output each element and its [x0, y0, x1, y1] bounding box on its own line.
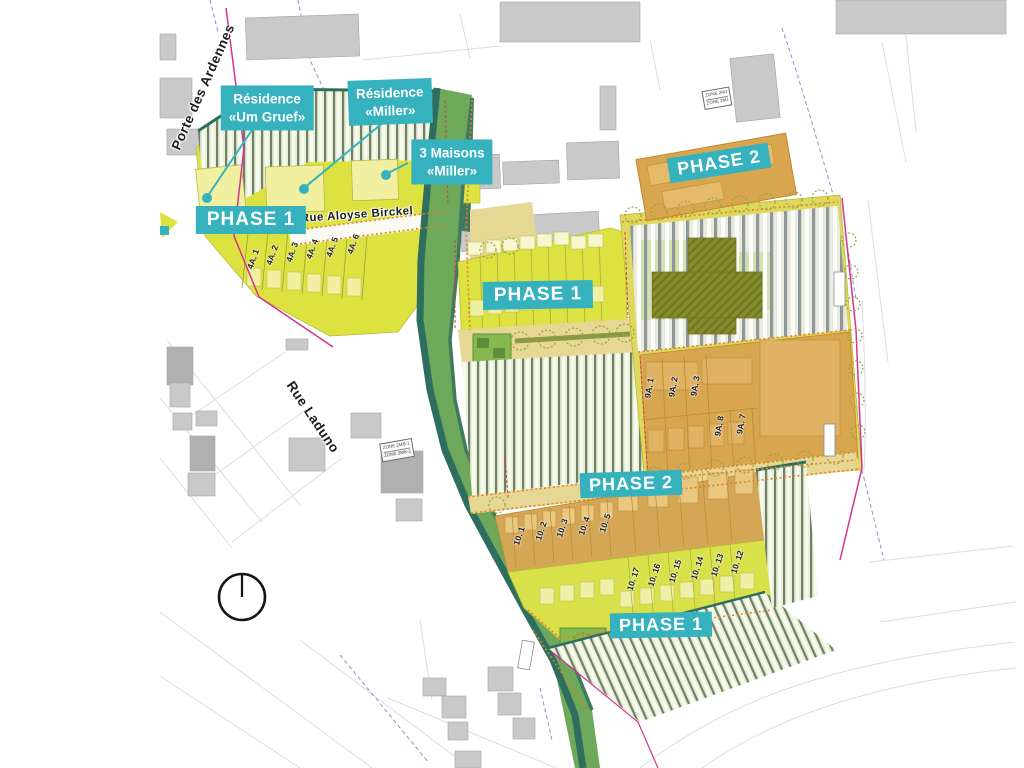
phase-badge-center-phase2: PHASE 2: [580, 470, 683, 499]
callout-residence-um-gruef: Résidence «Um Gruef»: [221, 85, 314, 130]
callout-line: «Miller»: [356, 101, 424, 121]
callout-line: Résidence: [356, 83, 424, 103]
phase-badge-nw-phase1: PHASE 1: [196, 206, 306, 234]
callout-line: 3 Maisons: [419, 144, 484, 162]
callout-line: «Miller»: [419, 162, 484, 180]
phase-badge-center-phase1: PHASE 1: [483, 280, 594, 310]
phase-badge-south-phase1: PHASE 1: [610, 612, 712, 639]
callout-line: Résidence: [229, 90, 306, 108]
callout-residence-miller: Résidence «Miller»: [347, 78, 432, 126]
development-zones-layer: [160, 88, 862, 768]
north-compass-icon: [219, 573, 265, 620]
callout-line: «Um Gruef»: [229, 108, 306, 126]
callout-3-maisons-miller: 3 Maisons «Miller»: [411, 139, 492, 184]
site-plan-map-canvas: [0, 0, 1024, 768]
site-plan: Porte des Ardennes Rue Aloyse Birckel Ru…: [0, 0, 1024, 768]
